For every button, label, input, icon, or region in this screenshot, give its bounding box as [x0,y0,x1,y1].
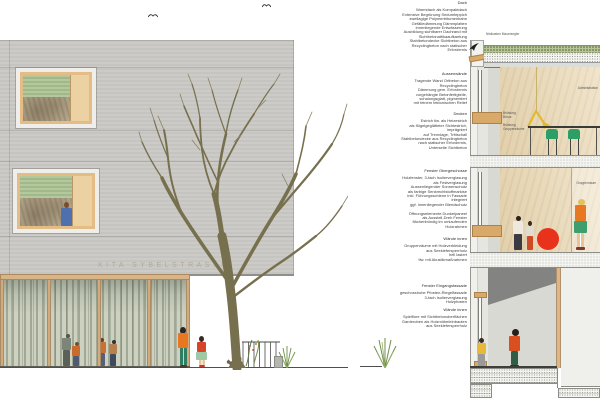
annotation-block-fenster-eingang: Fenster Eingangsfassade geschosshohe Pfo… [277,284,467,305]
figure-legs [73,356,79,366]
glazing-mullion [47,280,51,366]
figure-woman-head [512,329,519,336]
window-second-floor [13,169,99,233]
figure-boy-legs [514,234,522,250]
figure-child-torso [61,208,72,226]
floor-slab [470,155,600,168]
figure-torso [62,338,71,350]
chair-green [546,129,558,139]
annotation-block-aussenwaende: Aussenwände Tragende Wand Ortbeton aus R… [277,72,467,106]
swift-bird-icon [468,42,480,52]
foundation-hatch [470,384,492,398]
figure-torso [72,346,80,356]
grass-tuft [372,338,398,368]
chair-leg [556,139,557,155]
window-core [23,75,89,121]
bird-icon [262,3,271,9]
figure-legs [110,354,116,366]
nest-box-label: Nistkasten Mauersegler [486,33,556,37]
figure-torso [109,344,117,354]
floor-buildup-lower [558,388,600,398]
architectural-sheet: KITA SYBELSTRASSE [0,0,600,408]
window-interior [23,97,70,121]
soffit-shadow [488,268,556,312]
annotation-body: Tragende Wand Ortbeton aus Recyclingbeto… [277,79,467,105]
figure-educator-torso [575,205,586,221]
facade-vertical-joint [9,40,10,276]
annotation-body: geschosshohe Pfosten-Riegelfassade 3-fac… [277,291,467,304]
annotation-body: Holzfenster, 3-fach Isolierverglasung al… [277,176,467,229]
foundation-step-line [557,368,558,388]
annotation-heading: Wände innen [277,237,467,241]
window-wood-panel [70,75,89,121]
roof-insulation-layer [484,53,600,62]
window-sill-grouprooms [472,225,502,237]
window-core [20,176,92,226]
figure-child-torso [477,343,486,354]
chair-leg [570,139,571,155]
figure-woman-legs [511,351,518,365]
section-window-glass [478,172,482,225]
annotation-block-waende-innen-2: Wände innen Spielflure mit Sichtbetonobe… [277,308,467,329]
parapet-label-grouprooms: Brüstung Gruppenräume [503,124,547,131]
figure-educator-shoes [576,247,585,250]
window-blind-green [23,75,70,98]
annotation-block-fenster-og: Fenster Obergeschosse Holzfenster, 3-fac… [277,169,467,229]
tree-root [228,354,246,368]
desk-leg [530,128,531,155]
chair-leg [548,139,549,155]
figure-woman-legs [180,348,187,365]
figure-woman-torso [178,333,188,348]
window-sill-offices [472,112,502,124]
figure-legs [63,350,70,366]
chair-green [568,129,580,139]
window-wood-panel [72,176,92,226]
figure-educator-legs [577,233,584,247]
section-window-glass [478,70,482,112]
annotation-body: Warmdach als Kompaktdach Extensive Begrü… [277,8,467,52]
figure-girl-skirt [196,352,207,360]
figure-girl-torso [526,226,534,236]
annotation-body: Gruppenräume mit Holzverkleidung aus See… [277,244,467,262]
desk-leg [596,128,597,155]
window-upper-floor [16,68,96,128]
annotation-heading: Aussenwände [277,72,467,76]
annotation-heading: Dach [277,1,467,5]
annotation-body: Spielflure mit Sichtbetonoberflächen Gar… [277,315,467,328]
section-rear-zone [561,268,600,387]
figure-boy-torso [513,221,523,234]
annotation-block-dach: Dach Warmdach als Kompaktdach Extensive … [277,1,467,52]
figure-girl-shoes [199,365,205,367]
green-roof-sedum-layer [484,46,600,53]
floor-slab [470,252,600,268]
figure-woman-torso [509,336,520,351]
window-blind-green [20,176,72,199]
annotation-heading: Fenster Obergeschosse [277,169,467,173]
annotation-heading: Wände innen [277,308,467,312]
figure-woman-shoes [180,365,187,368]
annotation-body: Estrich tlw. als Heizestrich als flügelg… [277,119,467,150]
glazing-mullion [97,280,101,366]
room-label-upper: Administration [540,87,598,91]
figure-girl-torso [197,342,206,352]
annotation-block-waende-innen-1: Wände innen Gruppenräume mit Holzverklei… [277,237,467,262]
facade-top-edge [0,40,294,41]
bird-icon [148,13,158,19]
glazing-head-wood [474,292,487,298]
floor-buildup-hatch [470,368,558,384]
annotation-heading: Decken [277,112,467,116]
chair-leg [578,139,579,155]
parapet-label-offices: Brüstung Büros [503,112,547,119]
annotation-block-decken: Decken Estrich tlw. als Heizestrich als … [277,112,467,150]
annotation-heading: Fenster Eingangsfassade [277,284,467,288]
glazing-mullion [0,280,4,366]
red-play-ball [537,228,559,250]
figure-educator-skirt [574,221,587,233]
room-label-middle: Gruppenraum [548,182,596,186]
figure-girl-legs [527,236,533,250]
